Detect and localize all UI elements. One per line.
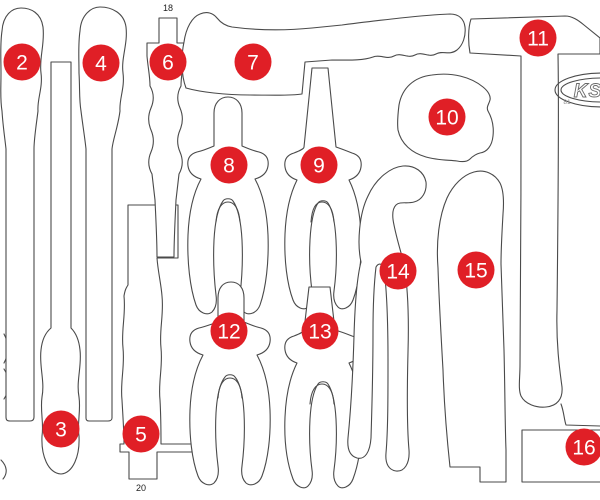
wrench-15-outline (437, 171, 506, 482)
tool-tray-svg: KS 81 18 20 2 3 4 5 6 7 8 9 10 11 (0, 0, 600, 500)
pliers-8-outline (188, 97, 268, 314)
marker-number: 15 (464, 260, 487, 283)
part-marker-12: 12 (211, 313, 248, 350)
pliers-9-outline (285, 68, 361, 309)
part-marker-11: 11 (520, 20, 557, 57)
part-marker-5: 5 (123, 416, 160, 453)
marker-number: 7 (247, 52, 259, 75)
brand-logo-text: KS (574, 81, 600, 102)
part-marker-16: 16 (566, 429, 600, 466)
part-marker-3: 3 (43, 411, 80, 448)
marker-number: 6 (162, 52, 174, 75)
marker-number: 12 (217, 321, 240, 344)
marker-number: 11 (527, 28, 549, 51)
part-marker-6: 6 (150, 44, 187, 81)
marker-number: 2 (16, 52, 28, 75)
slot-label-18: 18 (163, 3, 173, 13)
part-marker-14: 14 (380, 253, 417, 290)
brand-code-text: 81 (563, 99, 571, 106)
part-marker-10: 10 (429, 99, 466, 136)
marker-number: 10 (435, 107, 458, 130)
marker-number: 13 (308, 321, 331, 344)
marker-number: 16 (572, 437, 595, 460)
brand-logo: KS 81 (555, 73, 600, 107)
part-marker-9: 9 (301, 147, 338, 184)
hammer-compartment-line (561, 404, 600, 426)
part-marker-15: 15 (458, 252, 495, 289)
slot-label-20: 20 (136, 483, 146, 493)
bent-pliers-14-outline (348, 166, 426, 471)
part-marker-4: 4 (83, 45, 120, 82)
part-marker-2: 2 (4, 44, 41, 81)
part-marker-8: 8 (211, 147, 248, 184)
marker-number: 5 (135, 424, 147, 447)
marker-number: 14 (386, 261, 410, 284)
marker-number: 9 (313, 155, 325, 178)
marker-number: 4 (95, 53, 107, 76)
foam-inlay-diagram: KS 81 18 20 2 3 4 5 6 7 8 9 10 11 (0, 0, 600, 500)
marker-number: 3 (55, 419, 67, 442)
part-marker-7: 7 (235, 44, 272, 81)
marker-number: 8 (223, 155, 235, 178)
part-marker-13: 13 (302, 313, 339, 350)
